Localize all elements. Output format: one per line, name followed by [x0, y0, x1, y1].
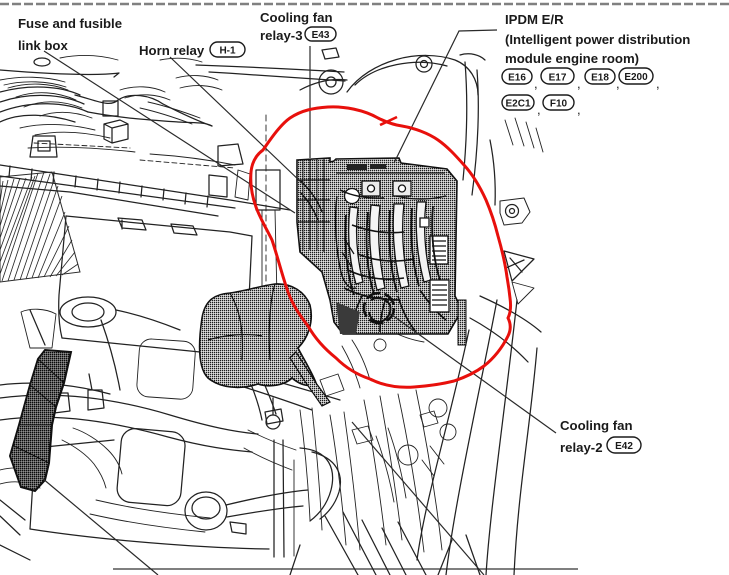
svg-text:E200: E200 — [624, 72, 648, 83]
svg-text:,: , — [577, 76, 581, 91]
svg-text:F10: F10 — [550, 99, 568, 110]
svg-text:module engine room): module engine room) — [505, 51, 639, 66]
svg-text:,: , — [537, 102, 541, 117]
svg-text:(Intelligent power distributio: (Intelligent power distribution — [505, 32, 690, 47]
svg-text:link box: link box — [18, 38, 68, 53]
svg-text:Cooling fan: Cooling fan — [260, 10, 333, 25]
svg-text:,: , — [577, 102, 581, 117]
svg-text:Cooling fan: Cooling fan — [560, 418, 633, 433]
svg-text:relay-3: relay-3 — [260, 28, 303, 43]
svg-text:E2C1: E2C1 — [505, 99, 530, 110]
svg-text:,: , — [656, 76, 660, 91]
svg-text:Fuse and fusible: Fuse and fusible — [18, 16, 122, 31]
svg-text:Horn relay: Horn relay — [139, 43, 205, 58]
svg-text:H-1: H-1 — [219, 46, 236, 57]
svg-text:E42: E42 — [615, 441, 633, 452]
svg-text:IPDM E/R: IPDM E/R — [505, 12, 564, 27]
svg-text:E17: E17 — [549, 73, 567, 84]
svg-text:,: , — [616, 76, 620, 91]
svg-text:relay-2: relay-2 — [560, 440, 603, 455]
svg-text:,: , — [534, 76, 538, 91]
svg-text:E43: E43 — [312, 30, 330, 41]
svg-text:E18: E18 — [591, 73, 609, 84]
svg-text:E16: E16 — [508, 73, 526, 84]
